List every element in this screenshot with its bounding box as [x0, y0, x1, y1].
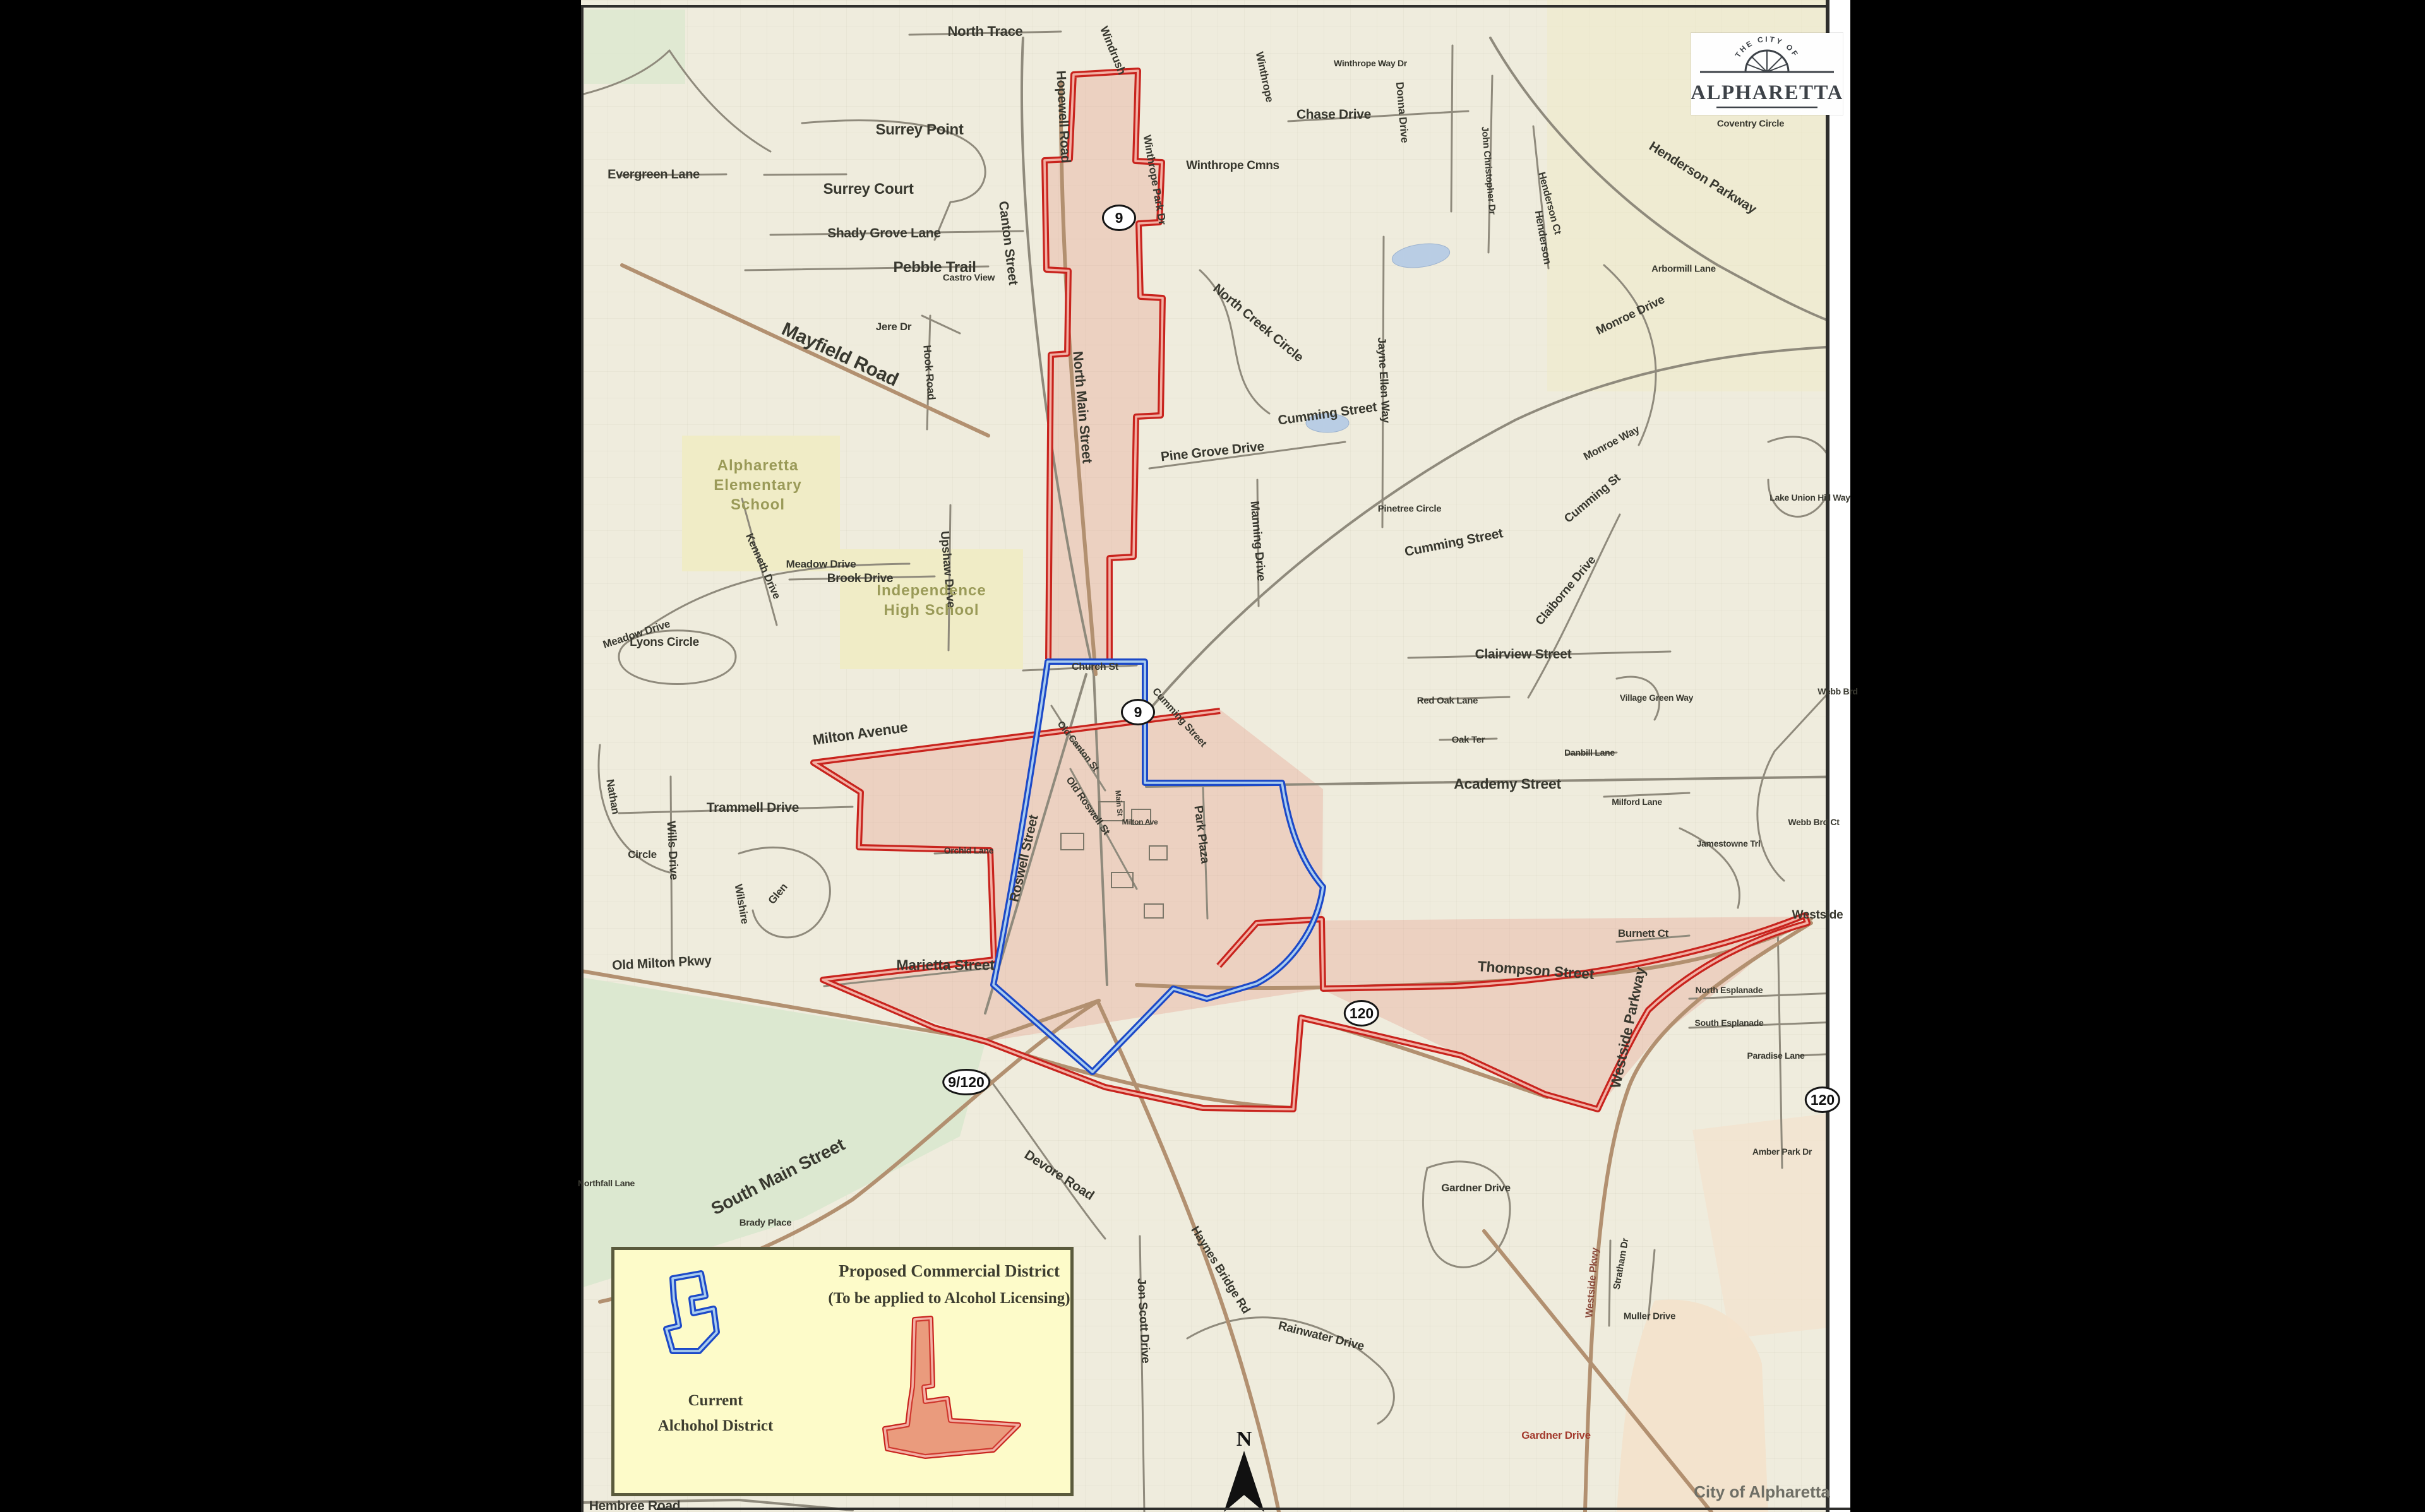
street-label: Hembree Road: [589, 1499, 681, 1512]
street-label: Evergreen Lane: [608, 168, 700, 182]
alpharetta-logo: THE CITY OF ALPHARETTA: [1691, 33, 1843, 115]
legend-proposed-text: Proposed Commercial District (To be appl…: [823, 1261, 1075, 1307]
street-label: Northfall Lane: [578, 1178, 635, 1188]
street-label: Amber Park Dr: [1752, 1146, 1812, 1157]
street-label: Marietta Street: [896, 957, 994, 974]
street-label: South Esplanade: [1694, 1018, 1763, 1028]
street-label: Gardner Drive: [1521, 1429, 1590, 1442]
street-label: Coventry Circle: [1717, 119, 1784, 129]
legend-proposed-line1: Proposed Commercial District: [823, 1261, 1075, 1281]
street-label: Clairview Street: [1475, 647, 1572, 662]
legend-current-line2: Alchohol District: [627, 1417, 804, 1435]
north-label: N: [1236, 1427, 1252, 1451]
street-label: Oak Ter: [1452, 735, 1485, 746]
legend-current-line1: Current: [627, 1392, 804, 1410]
street-label: Surrey Point: [875, 121, 963, 139]
street-label: Lake Union Hill Way: [1769, 492, 1850, 503]
street-label: Paradise Lane: [1747, 1051, 1804, 1061]
street-label: Castro View: [943, 273, 995, 283]
legend-current-shape: [666, 1273, 717, 1351]
street-label: Burnett Ct: [1618, 927, 1668, 940]
street-label: Church St: [1072, 662, 1118, 673]
street-label: Chase Drive: [1296, 107, 1371, 122]
street-label: Jamestowne Trl: [1697, 838, 1761, 848]
street-label: Surrey Court: [823, 181, 913, 198]
route-shield-9: 9: [1102, 205, 1136, 231]
route-shield-9-120: 9/120: [942, 1069, 990, 1095]
street-label: Shady Grove Lane: [827, 226, 941, 241]
street-label: Orchid Lane: [944, 845, 993, 855]
street-label: Webb Brd: [1817, 686, 1857, 696]
north-arrow: N: [1224, 1427, 1264, 1512]
street-label: Danbill Lane: [1564, 747, 1615, 758]
street-label: Jere Dr: [876, 321, 912, 333]
map-attribution: City of Alpharetta: [1667, 1482, 1857, 1502]
street-label: Circle: [628, 848, 656, 861]
street-label: Winthrope Way Dr: [1334, 58, 1407, 68]
legend-current-text: Current Alchohol District: [627, 1392, 804, 1435]
street-label: Red Oak Lane: [1417, 696, 1478, 706]
street-label: North Trace: [948, 23, 1023, 40]
screenshot-stage: N North TraceSurrey PointSurrey CourtPeb…: [0, 0, 2425, 1512]
legend: Proposed Commercial District (To be appl…: [611, 1247, 1074, 1496]
street-label: North Esplanade: [1696, 985, 1763, 995]
street-label: Westside: [1792, 908, 1843, 922]
route-shield-9: 9: [1121, 699, 1155, 725]
street-label: Gardner Drive: [1441, 1182, 1510, 1194]
route-shield-120: 120: [1344, 1000, 1379, 1027]
legend-proposed-shape: [885, 1318, 1019, 1456]
street-label: Pinetree Circle: [1378, 504, 1442, 515]
street-label: Muller Drive: [1624, 1311, 1675, 1322]
street-label: Meadow Drive: [786, 558, 856, 571]
street-label: Academy Street: [1454, 776, 1561, 793]
street-label: Webb Brd Ct: [1788, 817, 1839, 827]
logo-name: ALPHARETTA: [1691, 81, 1843, 104]
street-label: Village Green Way: [1620, 693, 1693, 703]
street-label: Milford Lane: [1612, 797, 1662, 807]
street-label: Milton Ave: [1122, 818, 1158, 826]
street-label: Arbormill Lane: [1651, 264, 1716, 275]
legend-proposed-line2: (To be applied to Alcohol Licensing): [823, 1290, 1075, 1307]
street-label: Trammell Drive: [707, 801, 799, 816]
independence-high-school-label: IndependenceHigh School: [877, 581, 986, 620]
map-canvas: N North TraceSurrey PointSurrey CourtPeb…: [581, 0, 1850, 1512]
alpharetta-elementary-school-label: AlpharettaElementarySchool: [714, 456, 801, 515]
street-label: Winthrope Cmns: [1186, 159, 1279, 173]
street-label: Brady Place: [739, 1218, 792, 1229]
logo-graphics: THE CITY OF ALPHARETTA: [1691, 33, 1843, 115]
route-shield-120: 120: [1805, 1086, 1840, 1113]
